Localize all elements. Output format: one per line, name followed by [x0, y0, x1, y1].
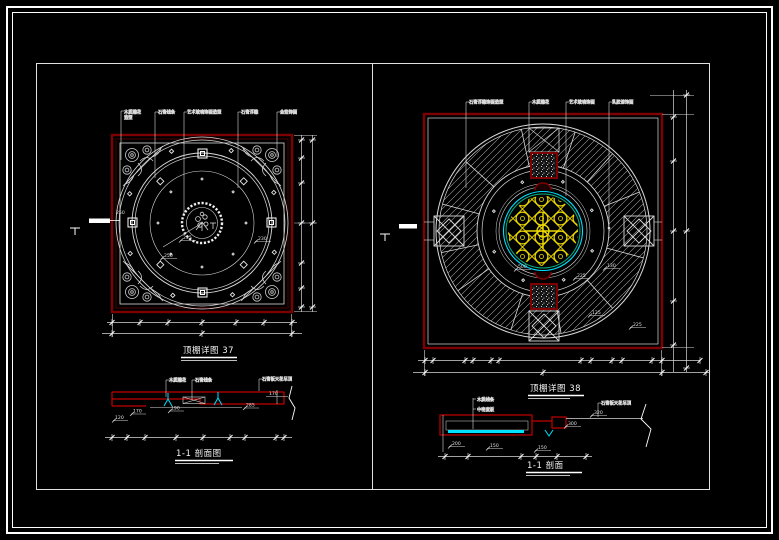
cad-drawing-canvas: 250 255 250 230 木质雕花 造型 石膏线条 艺术玻璃饰面造型 石膏…: [0, 0, 779, 540]
svg-text:150: 150: [490, 443, 499, 449]
svg-text:石膏板天花吊顶: 石膏板天花吊顶: [601, 400, 632, 407]
svg-text:255: 255: [183, 235, 192, 241]
right-plan-center-grille: [508, 196, 578, 266]
svg-text:艺术玻璃饰面: 艺术玻璃饰面: [569, 99, 595, 106]
glass-panel: [448, 430, 524, 433]
svg-text:130: 130: [607, 263, 616, 269]
svg-text:225: 225: [577, 273, 586, 279]
svg-text:320: 320: [594, 410, 603, 416]
svg-text:石膏线条: 石膏线条: [195, 377, 213, 384]
right-section-detail: 木质线条 中密度板 石膏板天花吊顶 200 150 150 300 320: [438, 396, 651, 476]
svg-text:1-1 剖面: 1-1 剖面: [527, 460, 564, 471]
right-ceiling-plan: 石膏浮雕饰面造型 木质雕花 艺术玻璃饰面 乳胶漆饰面 500 130 225 1…: [380, 90, 710, 399]
svg-text:艺术玻璃饰面造型: 艺术玻璃饰面造型: [187, 109, 222, 116]
left-section-detail: 120 170 190 285 170 木质雕花 石膏线条 石膏板天花吊顶: [105, 376, 295, 464]
right-section-right-label: 石膏板天花吊顶: [566, 400, 651, 448]
svg-text:230: 230: [258, 236, 267, 242]
svg-text:200: 200: [452, 441, 461, 447]
left-section-title: 1-1 剖面图: [175, 448, 233, 464]
svg-text:125: 125: [592, 310, 601, 316]
svg-text:150: 150: [538, 445, 547, 451]
svg-text:造型: 造型: [124, 114, 133, 121]
svg-text:石膏浮雕饰面造型: 石膏浮雕饰面造型: [469, 99, 504, 106]
left-ceiling-plan: 250 255 250 230 木质雕花 造型 石膏线条 艺术玻璃饰面造型 石膏…: [70, 109, 317, 361]
svg-text:500: 500: [518, 264, 527, 270]
right-section-bracket-labels: 木质线条 中密度板: [473, 396, 495, 429]
svg-text:285: 285: [246, 403, 255, 409]
svg-text:顶棚详图 37: 顶棚详图 37: [183, 345, 234, 356]
svg-text:乳胶漆饰面: 乳胶漆饰面: [612, 99, 634, 106]
svg-text:170: 170: [269, 391, 278, 397]
left-plan-title: 顶棚详图 37: [181, 345, 237, 361]
svg-text:250: 250: [116, 210, 125, 216]
svg-text:石膏线条: 石膏线条: [158, 109, 176, 116]
svg-text:木质线条: 木质线条: [477, 396, 495, 403]
svg-text:120: 120: [115, 415, 124, 421]
svg-text:190: 190: [171, 406, 180, 412]
svg-text:顶棚详图 38: 顶棚详图 38: [530, 383, 581, 394]
left-plan-leader-labels: 木质雕花 造型 石膏线条 艺术玻璃饰面造型 石膏浮雕 金箔饰面: [121, 109, 298, 217]
left-plan-dimensions: [102, 135, 317, 337]
svg-text:木质雕花: 木质雕花: [532, 99, 550, 106]
svg-text:金箔饰面: 金箔饰面: [280, 109, 298, 116]
svg-text:石膏板天花吊顶: 石膏板天花吊顶: [262, 376, 293, 383]
right-section-light-symbol: [545, 430, 553, 436]
right-section-title: 1-1 剖面: [526, 460, 582, 476]
sheet-border: [7, 7, 772, 533]
svg-text:250: 250: [164, 253, 173, 259]
right-plan-title: 顶棚详图 38: [528, 383, 584, 399]
svg-text:1-1 剖面图: 1-1 剖面图: [176, 448, 222, 459]
right-plan-section-marker: [380, 224, 417, 241]
svg-text:中密度板: 中密度板: [477, 406, 495, 413]
svg-text:木质雕花: 木质雕花: [169, 377, 187, 384]
svg-text:木质雕花: 木质雕花: [124, 109, 142, 116]
left-plan-center-medallion: [196, 212, 216, 231]
svg-text:石膏浮雕: 石膏浮雕: [241, 109, 259, 116]
svg-text:170: 170: [133, 409, 142, 415]
svg-text:225: 225: [633, 322, 642, 328]
svg-text:300: 300: [568, 421, 577, 427]
cad-sheet: 250 255 250 230 木质雕花 造型 石膏线条 艺术玻璃饰面造型 石膏…: [0, 0, 779, 540]
